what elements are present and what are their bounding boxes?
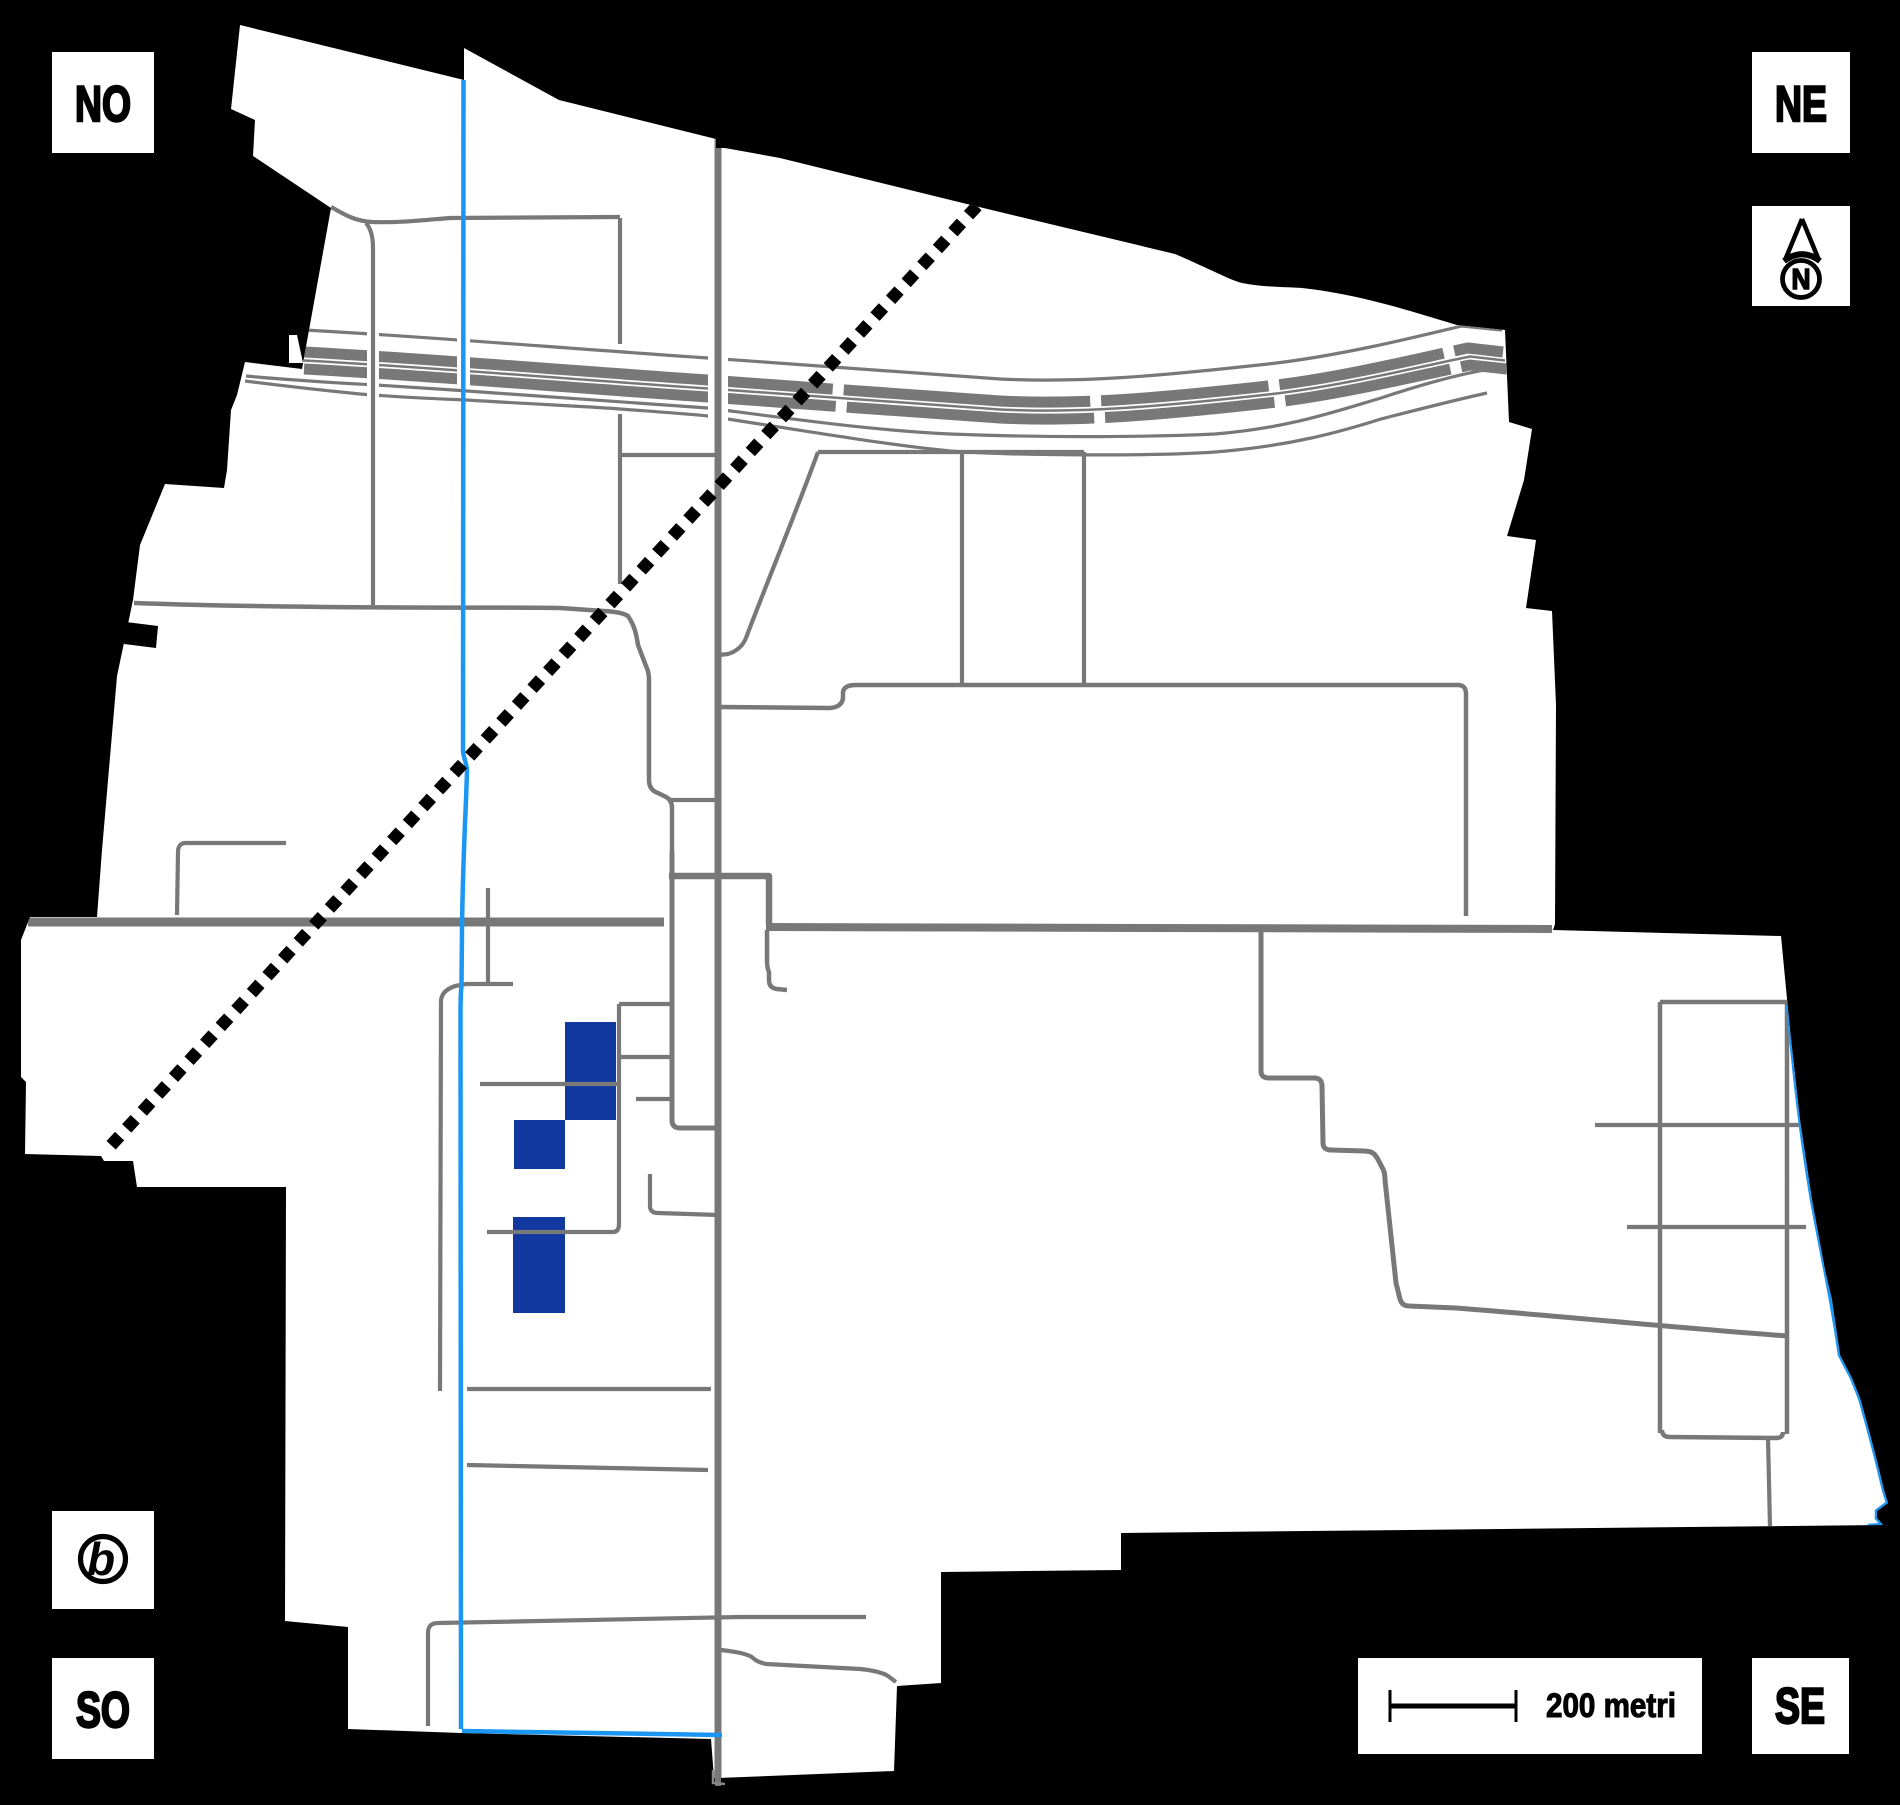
svg-text:N: N bbox=[1792, 264, 1811, 296]
svg-text:SE: SE bbox=[1775, 1678, 1825, 1734]
svg-text:200 metri: 200 metri bbox=[1546, 1687, 1676, 1725]
svg-text:SO: SO bbox=[76, 1682, 130, 1738]
svg-text:b: b bbox=[87, 1533, 115, 1585]
svg-text:NO: NO bbox=[75, 76, 131, 132]
svg-text:NE: NE bbox=[1775, 76, 1827, 132]
